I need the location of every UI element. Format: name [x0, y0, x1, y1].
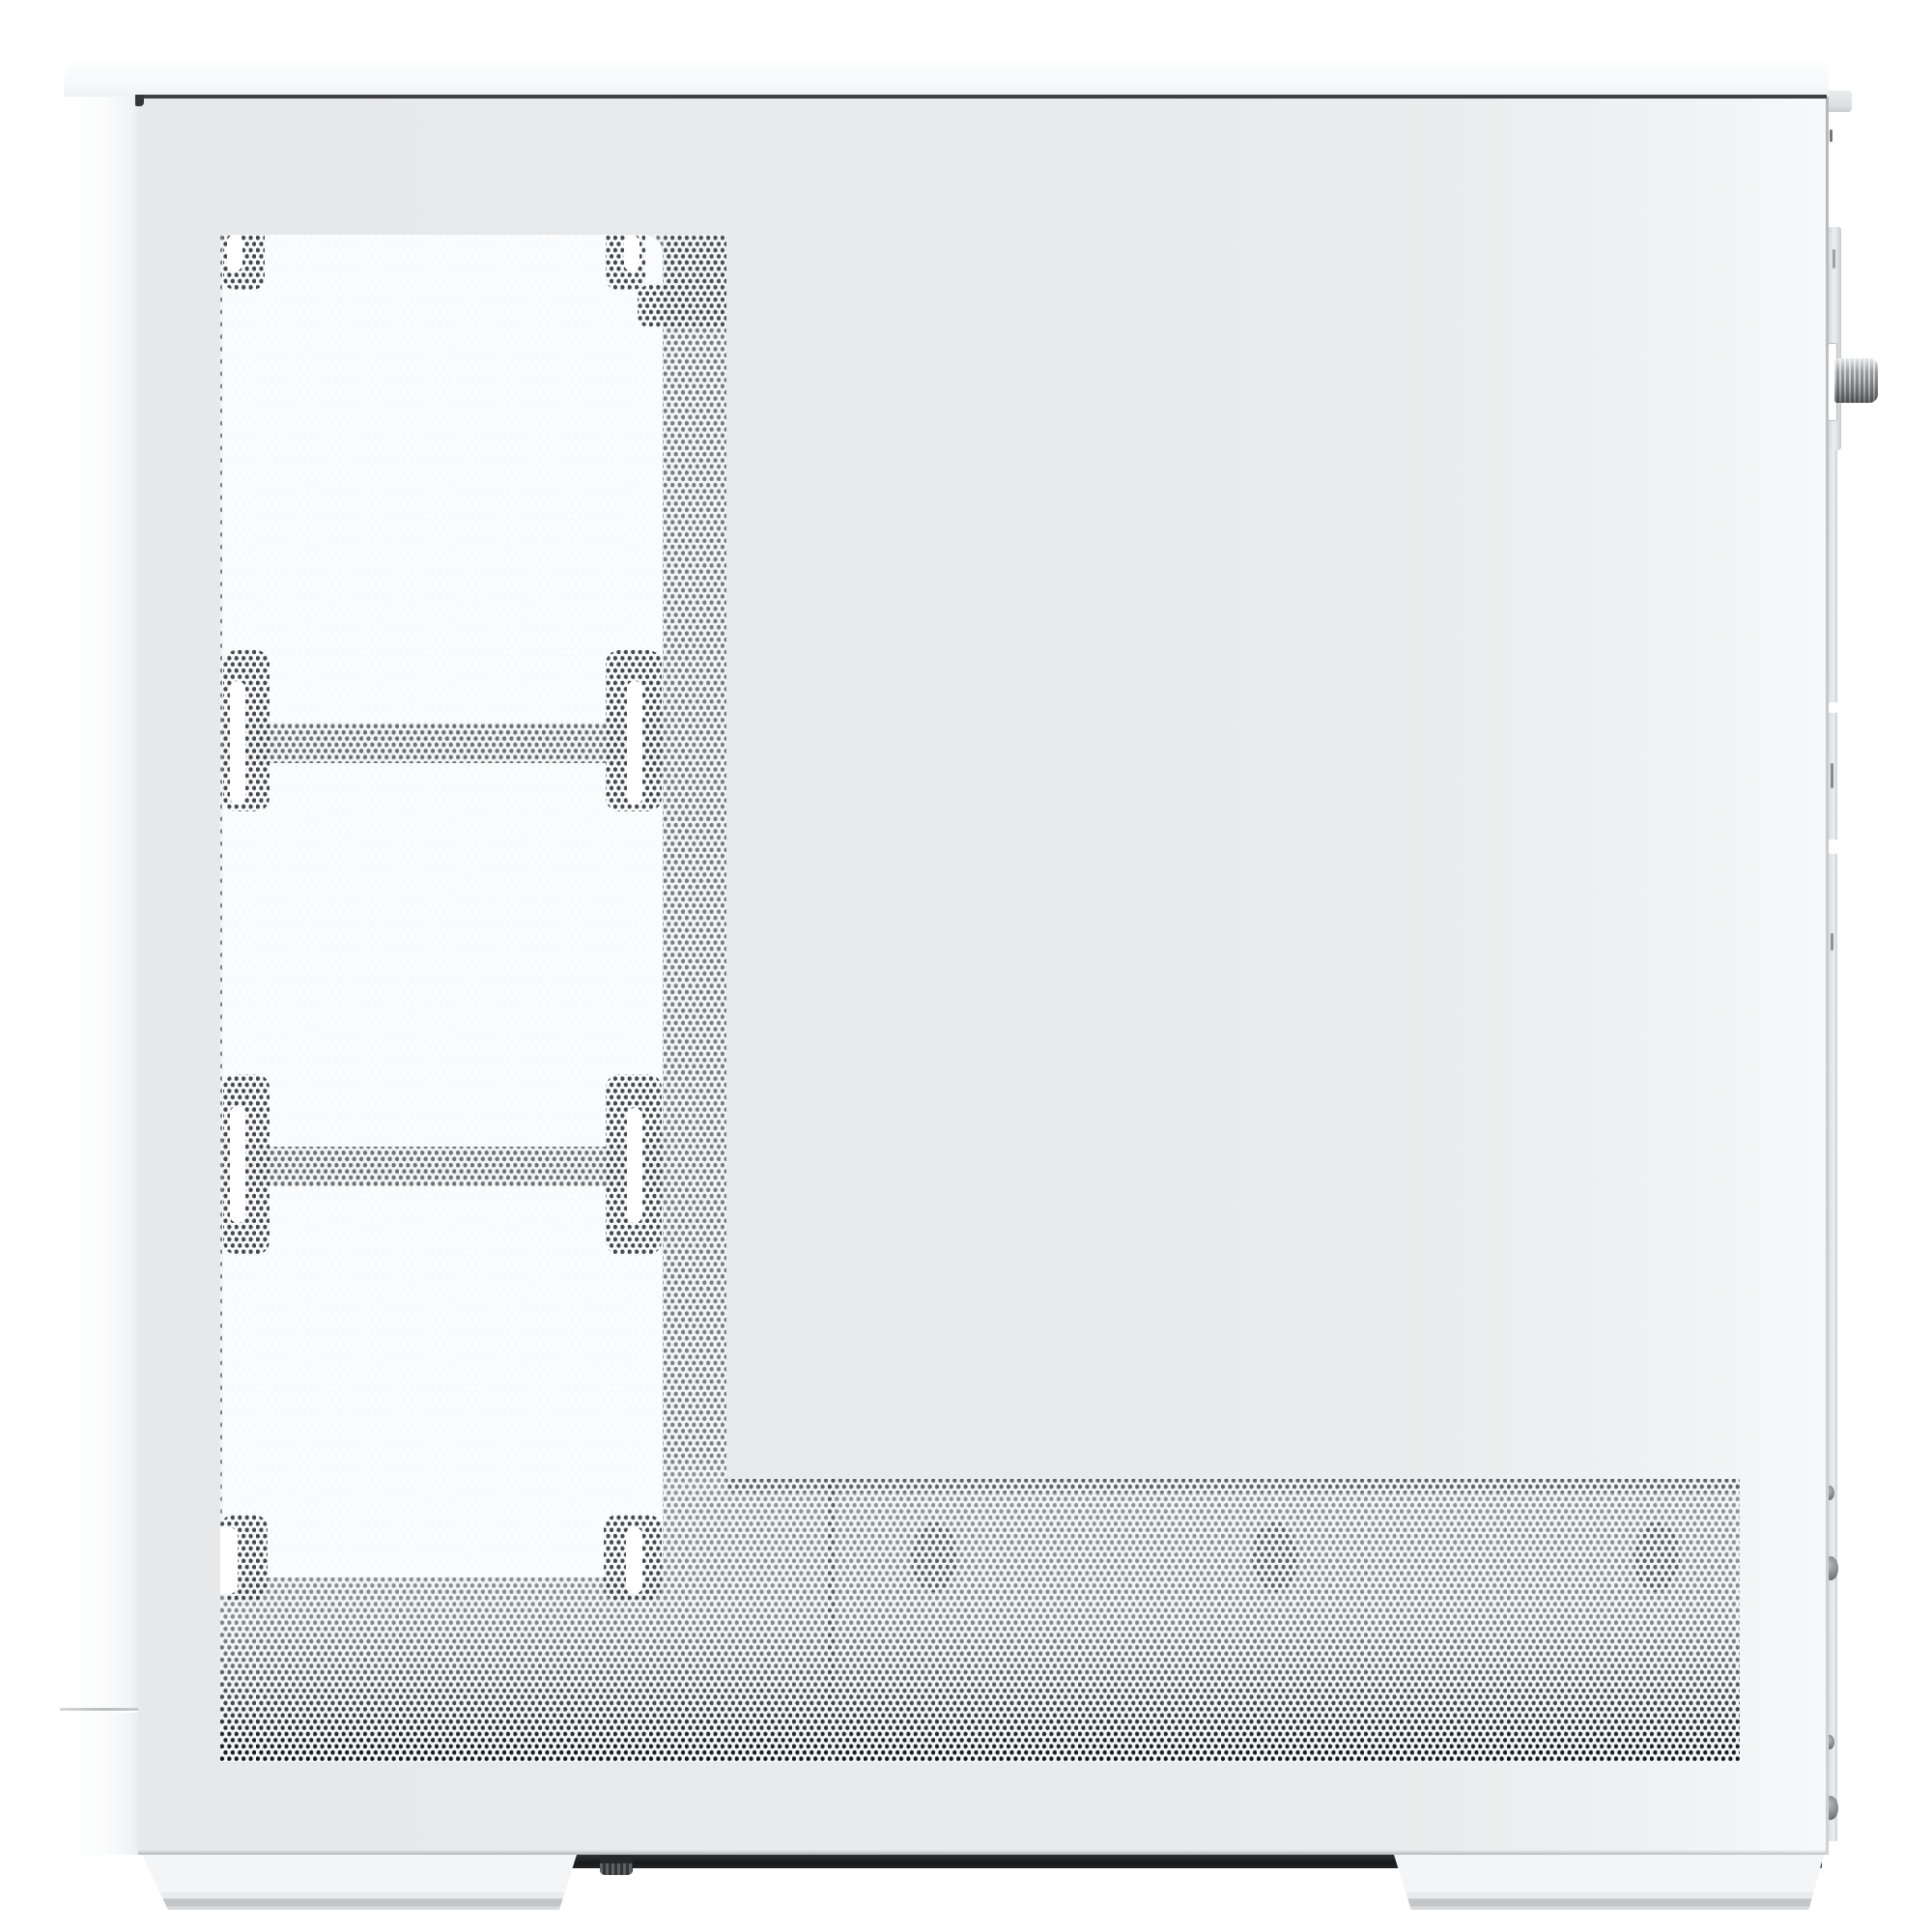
product-photo-pc-case — [0, 0, 1932, 1932]
top-cover-shadow-line — [138, 95, 1827, 99]
front-panel-divider — [60, 1708, 138, 1711]
fan-cutout-bottom — [222, 1186, 663, 1577]
top-cover-corner-mark — [135, 95, 144, 106]
rear-strip-joint — [1829, 839, 1837, 854]
rear-strip-joint — [1829, 702, 1837, 713]
mesh-vent-panel — [220, 235, 1740, 1762]
fan-cutouts — [222, 235, 663, 1577]
rear-edge-mark — [1830, 129, 1833, 142]
separator-band — [245, 1147, 665, 1186]
rivet-smudge — [911, 1522, 957, 1592]
front-foot — [142, 1855, 577, 1910]
separator-band — [245, 723, 665, 763]
rear-edge-mark — [1831, 763, 1833, 788]
rear-thumbscrew-knob — [1834, 358, 1878, 403]
rear-edge-mark — [1831, 933, 1833, 951]
top-cover-lip — [64, 60, 1829, 97]
rear-edge-strip — [1829, 450, 1837, 1841]
rear-foot — [1394, 1855, 1824, 1910]
strip-top-row — [726, 1479, 1740, 1492]
rivet-smudge — [1634, 1522, 1680, 1592]
bottom-screw — [600, 1856, 633, 1875]
rear-edge-mark — [1833, 249, 1835, 269]
front-panel-strip — [60, 62, 138, 1855]
rear-release-tab — [1829, 91, 1852, 112]
fan-cutout-middle — [222, 763, 663, 1147]
fan-cutout-top — [222, 235, 663, 723]
rivet-smudge — [1252, 1522, 1298, 1592]
strip-seam — [828, 1479, 836, 1762]
